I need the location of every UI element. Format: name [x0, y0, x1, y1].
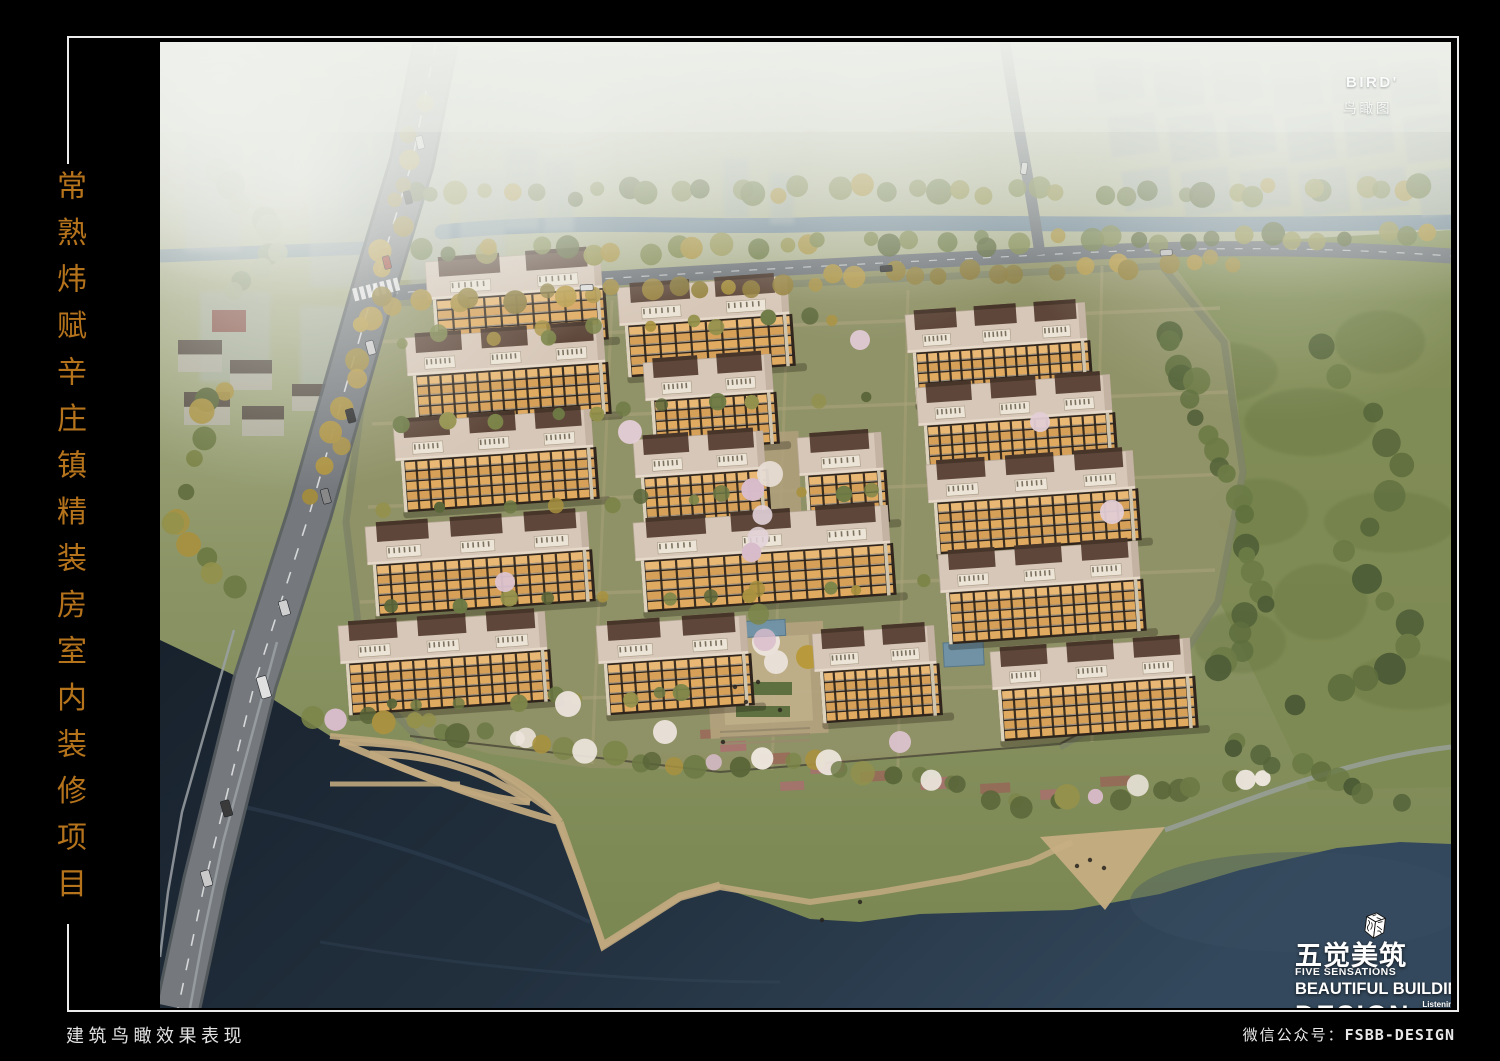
bird-eye-label: BIRD' [1346, 74, 1399, 91]
building [938, 536, 1158, 651]
frame-line-top [67, 36, 1459, 38]
building [596, 611, 767, 722]
frame-line-bottom [67, 1010, 1459, 1012]
logo-chinese-name: 五觉美筑 [1295, 941, 1407, 971]
aerial-rendering: BIRD' 鸟瞰图 五觉美筑 FIVE SE [160, 42, 1451, 1008]
project-title-vertical: 常熟炜赋辛庄镇精装房室内装修项目 [50, 170, 86, 926]
caption-right: 微信公众号：FSBB-DESIGN [1243, 1024, 1455, 1045]
wechat-code: FSBB-DESIGN [1345, 1026, 1455, 1044]
logo-design-word: DESIGN [1295, 1004, 1411, 1008]
building [812, 621, 955, 730]
aerial-scene-svg [160, 42, 1451, 1008]
frame-line-left-top [67, 36, 69, 164]
presentation-board: 常熟炜赋辛庄镇精装房室内装修项目 [0, 0, 1500, 1061]
frame-line-left-bottom [67, 924, 69, 1012]
building [338, 607, 565, 722]
five-sensations-cube-icon [1293, 910, 1451, 942]
logo-sense-tags: Listening\Smelling Visioning\Touching Ta… [1415, 1000, 1451, 1008]
wechat-label: 微信公众号： [1243, 1028, 1345, 1044]
caption-left: 建筑鸟瞰效果表现 [66, 1022, 246, 1048]
studio-logo: 五觉美筑 FIVE SENSATIONS BEAUTIFUL BUILDING [1295, 912, 1451, 1008]
bird-eye-sublabel: 鸟瞰图 [1343, 97, 1393, 117]
logo-tagline: BEAUTIFUL BUILDING [1295, 980, 1451, 998]
frame-line-right [1457, 36, 1459, 1012]
building [990, 633, 1210, 748]
building [365, 507, 607, 623]
